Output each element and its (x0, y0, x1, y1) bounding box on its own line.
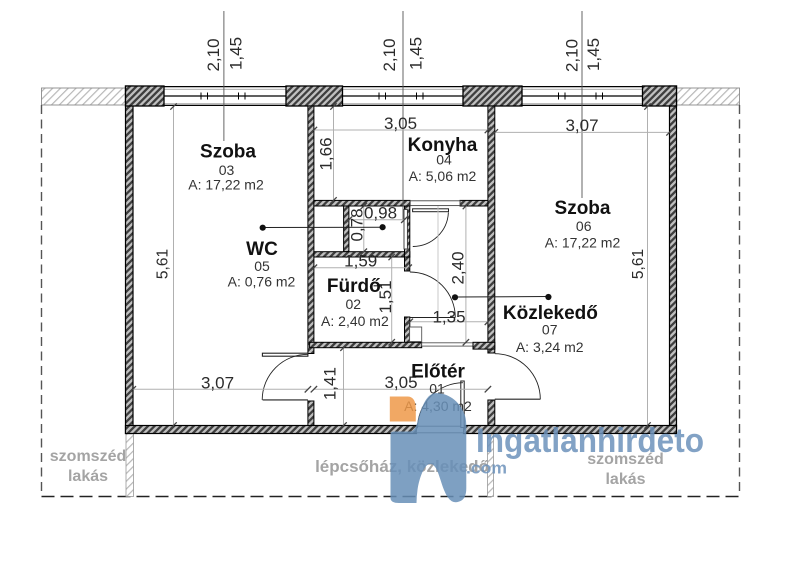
svg-text:A: 0,76 m2: A: 0,76 m2 (228, 274, 296, 290)
svg-text:1,45: 1,45 (226, 37, 245, 70)
svg-text:0,98: 0,98 (364, 204, 397, 223)
svg-text:Szoba: Szoba (200, 142, 256, 163)
svg-text:1,45: 1,45 (406, 37, 425, 70)
svg-text:2,10: 2,10 (204, 38, 223, 71)
svg-text:3,07: 3,07 (201, 373, 234, 392)
svg-text:A: 5,06 m2: A: 5,06 m2 (409, 168, 477, 184)
svg-text:A: 3,24 m2: A: 3,24 m2 (516, 339, 584, 355)
svg-text:3,05: 3,05 (384, 114, 417, 133)
svg-text:06: 06 (576, 218, 592, 234)
svg-text:0,78: 0,78 (347, 208, 366, 241)
svg-text:05: 05 (254, 258, 270, 274)
svg-text:Előtér: Előtér (411, 362, 465, 383)
svg-text:Szoba: Szoba (555, 198, 611, 219)
svg-text:A: 17,22 m2: A: 17,22 m2 (188, 177, 264, 193)
svg-text:1,45: 1,45 (584, 38, 603, 71)
svg-text:2,40: 2,40 (448, 251, 467, 284)
svg-text:Ingatlanhirdeto: Ingatlanhirdeto (476, 422, 704, 460)
svg-text:A: 2,40 m2: A: 2,40 m2 (321, 313, 389, 329)
svg-text:07: 07 (542, 322, 558, 338)
svg-text:Fürdő: Fürdő (327, 276, 381, 297)
svg-text:.com: .com (466, 459, 507, 478)
svg-text:2,10: 2,10 (380, 38, 399, 71)
svg-text:szomszéd: szomszéd (50, 448, 126, 465)
svg-text:lakás: lakás (68, 468, 108, 485)
svg-text:1,35: 1,35 (432, 308, 465, 327)
svg-text:1,66: 1,66 (317, 137, 336, 170)
svg-text:04: 04 (436, 152, 452, 168)
svg-text:1,41: 1,41 (320, 367, 339, 400)
svg-text:1,59: 1,59 (344, 252, 377, 271)
svg-text:5,61: 5,61 (630, 249, 647, 279)
svg-text:lakás: lakás (605, 471, 645, 488)
svg-text:3,07: 3,07 (565, 116, 598, 135)
svg-text:5,61: 5,61 (155, 249, 172, 279)
svg-text:02: 02 (346, 296, 362, 312)
svg-text:2,10: 2,10 (563, 39, 582, 72)
svg-text:A: 17,22 m2: A: 17,22 m2 (545, 235, 621, 251)
